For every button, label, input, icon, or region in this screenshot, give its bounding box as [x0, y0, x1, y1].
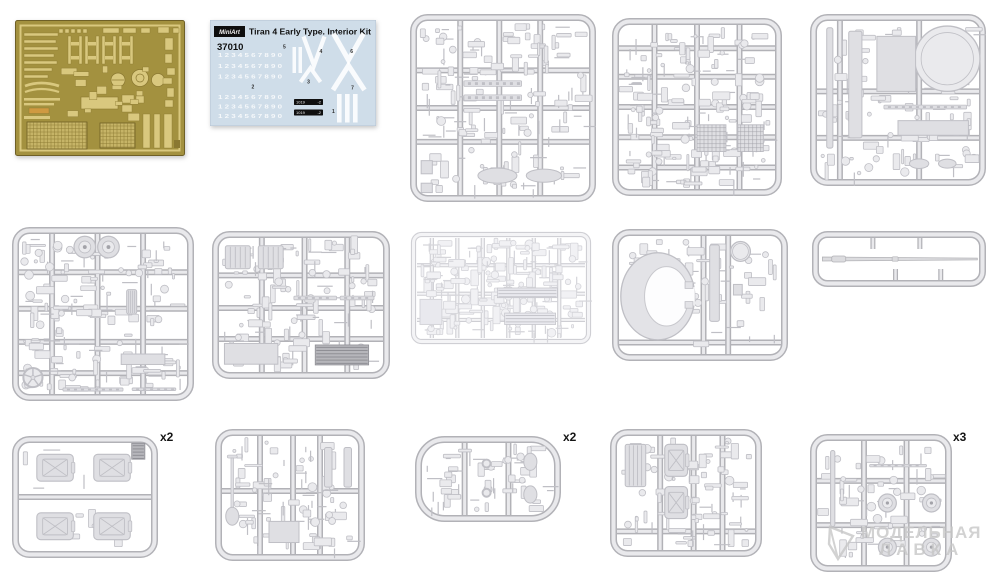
- svg-text:1019: 1019: [296, 110, 306, 115]
- svg-text:5: 5: [283, 45, 286, 51]
- sprue-brackets-graphic: [610, 429, 762, 557]
- sprue-fuel-cans: [12, 436, 158, 558]
- sprue-large-4-graphic: [12, 227, 194, 401]
- sprue-flat-light-graphic: [410, 231, 592, 345]
- sprue-brackets: [610, 429, 762, 557]
- watermark-line1: МОДЕЛЬНАЯ: [861, 524, 982, 541]
- pe-fret: [15, 20, 185, 156]
- svg-text:37010: 37010: [217, 42, 243, 53]
- sprue-large-3: [810, 14, 986, 186]
- svg-text:MiniArt: MiniArt: [219, 30, 241, 36]
- svg-text:1 2 3 4 5 6 7 8 9 0: 1 2 3 4 5 6 7 8 9 0: [218, 114, 282, 120]
- sprue-large-1: [410, 14, 596, 202]
- sprue-fuel-cans-graphic: [12, 436, 158, 558]
- svg-text:1019: 1019: [296, 100, 306, 105]
- sprue-large-1-graphic: [410, 14, 596, 202]
- sprue-turret: [612, 229, 788, 361]
- shop-logo-icon: [826, 524, 856, 562]
- sprue-small-wide: [415, 436, 561, 522]
- watermark-line2: ЛАВКА: [861, 541, 982, 558]
- sprue-tools: [215, 429, 365, 561]
- sprue-tools-graphic: [215, 429, 365, 561]
- svg-text:1 2 3 4 5 6 7 8 9 0: 1 2 3 4 5 6 7 8 9 0: [218, 75, 282, 81]
- svg-text:1: 1: [332, 109, 335, 115]
- sprue-flat-light: [410, 231, 592, 345]
- sprue-large-5: [212, 231, 390, 379]
- kit-contents-photo: MiniArtTiran 4 Early Type. Interior Kit3…: [0, 0, 1000, 580]
- svg-text:2: 2: [252, 84, 255, 90]
- svg-text:1 2 3 4 5 6 7 8 9 0: 1 2 3 4 5 6 7 8 9 0: [218, 64, 282, 70]
- sprue-large-4: [12, 227, 194, 401]
- quantity-label-x2: x2: [563, 430, 576, 444]
- sprue-large-3-graphic: [810, 14, 986, 186]
- pe-fret-graphic: [15, 20, 185, 156]
- shop-watermark: МОДЕЛЬНАЯ ЛАВКА: [826, 524, 982, 562]
- svg-text:7: 7: [351, 85, 354, 91]
- quantity-label-x3: x3: [953, 430, 966, 444]
- svg-text:1 2 3 4 5 6 7 8 9 0: 1 2 3 4 5 6 7 8 9 0: [218, 53, 282, 59]
- decal-sheet: MiniArtTiran 4 Early Type. Interior Kit3…: [210, 20, 376, 126]
- sprue-large-5-graphic: [212, 231, 390, 379]
- svg-text:1 2 3 4 5 6 7 8 9 0: 1 2 3 4 5 6 7 8 9 0: [218, 95, 282, 101]
- svg-text:Tiran 4 Early Type. Interior K: Tiran 4 Early Type. Interior Kit: [249, 28, 371, 37]
- sprue-large-2: [612, 18, 782, 196]
- svg-text:6: 6: [350, 49, 353, 55]
- svg-text:3: 3: [307, 80, 310, 86]
- quantity-label-x2: x2: [160, 430, 173, 444]
- svg-text:4: 4: [320, 49, 323, 55]
- sprue-large-2-graphic: [612, 18, 782, 196]
- sprue-small-wide-graphic: [415, 436, 561, 522]
- sprue-gun-barrel: [812, 231, 986, 287]
- watermark-text: МОДЕЛЬНАЯ ЛАВКА: [861, 524, 982, 559]
- sprue-turret-graphic: [612, 229, 788, 361]
- svg-text:1 2 3 4 5 6 7 8 9 0: 1 2 3 4 5 6 7 8 9 0: [218, 104, 282, 110]
- decal-sheet-graphic: MiniArtTiran 4 Early Type. Interior Kit3…: [210, 20, 376, 126]
- sprue-gun-barrel-graphic: [812, 231, 986, 287]
